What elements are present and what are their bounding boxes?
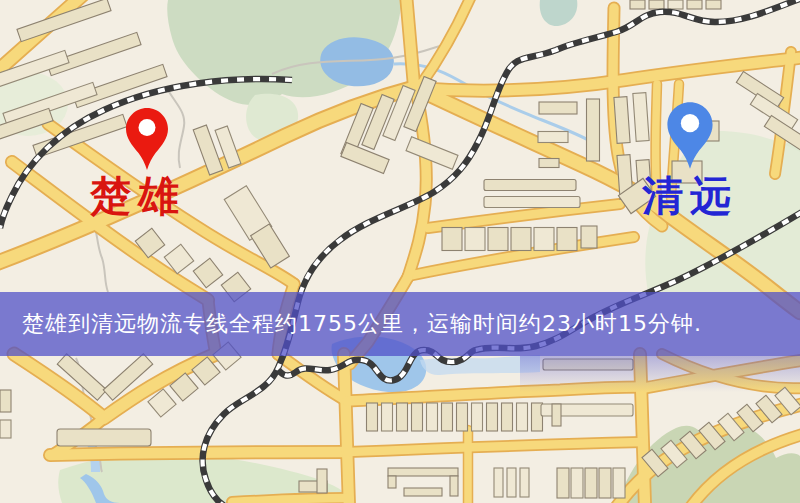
destination-label: 清远 bbox=[642, 176, 738, 217]
route-info-banner: 楚雄到清远物流专线全程约1755公里，运输时间约23小时15分钟. bbox=[0, 292, 800, 356]
map-base-image bbox=[0, 0, 800, 503]
map-canvas: 楚雄 清远 楚雄到清远物流专线全程约1755公里，运输时间约23小时15分钟. bbox=[0, 0, 800, 503]
route-info-text: 楚雄到清远物流专线全程约1755公里，运输时间约23小时15分钟. bbox=[0, 309, 710, 339]
banner-fade-shadow bbox=[520, 356, 800, 392]
origin-label: 楚雄 bbox=[90, 176, 186, 217]
